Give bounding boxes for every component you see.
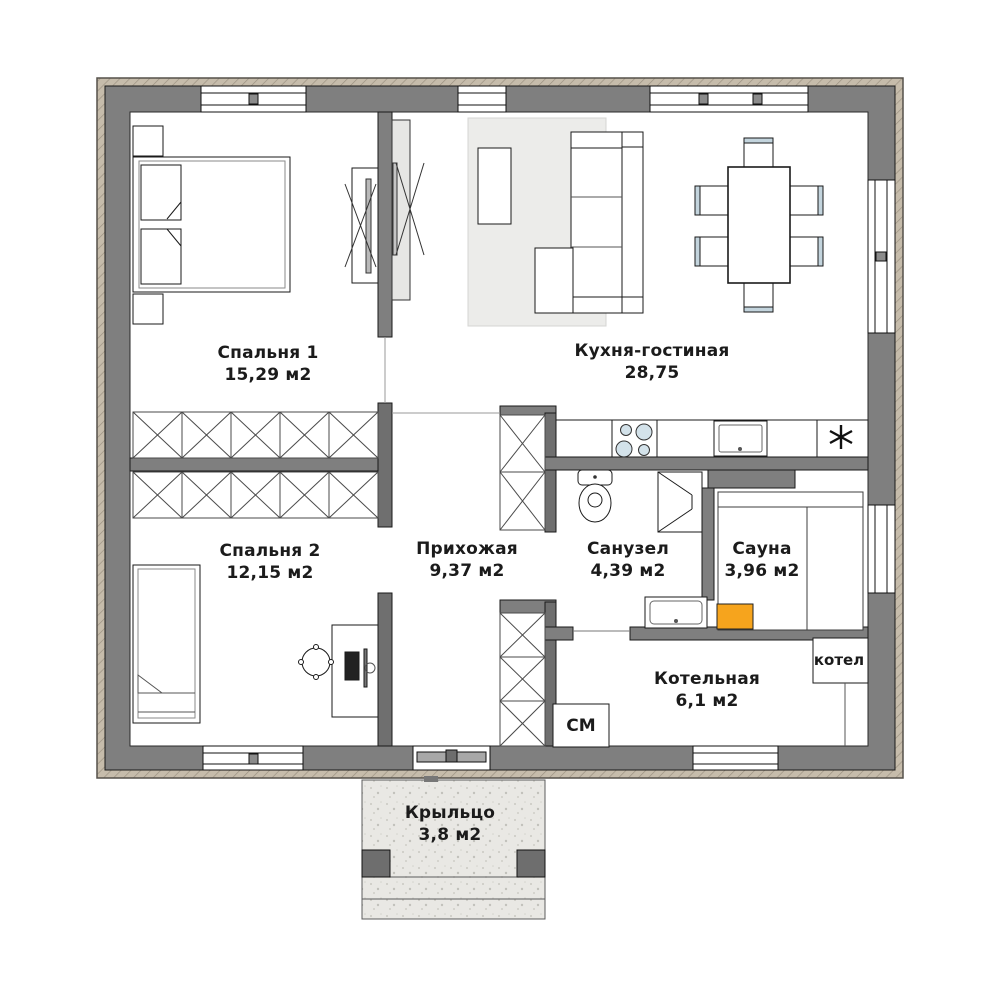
room-label-boiler-room: Котельная 6,1 м2 bbox=[654, 668, 760, 712]
boiler-label: котел bbox=[814, 651, 864, 669]
wall-hallway-right-upper bbox=[545, 413, 556, 532]
desk-pc bbox=[345, 652, 359, 680]
room-area: 15,29 м2 bbox=[217, 364, 318, 386]
room-label-bathroom: Санузел 4,39 м2 bbox=[587, 538, 669, 582]
wall-bathroom-sauna bbox=[702, 488, 714, 600]
room-name: Санузел bbox=[587, 539, 669, 559]
entrance-door bbox=[413, 746, 490, 770]
room-name: Спальня 2 bbox=[219, 541, 320, 561]
floor-plan-drawing bbox=[0, 0, 1000, 1000]
room-label-bedroom1: Спальня 1 15,29 м2 bbox=[217, 342, 318, 386]
room-label-sauna: Сауна 3,96 м2 bbox=[725, 538, 800, 582]
room-area: 4,39 м2 bbox=[587, 560, 669, 582]
room-name: Сауна bbox=[732, 539, 791, 559]
room-area: 3,96 м2 bbox=[725, 560, 800, 582]
room-name: Прихожая bbox=[416, 539, 518, 559]
window-bedroom1-top bbox=[201, 86, 306, 112]
washing-machine-label: СМ bbox=[566, 716, 595, 736]
porch-post bbox=[517, 850, 545, 877]
desk bbox=[332, 625, 378, 717]
room-area: 6,1 м2 bbox=[654, 690, 760, 712]
room-label-porch: Крыльцо 3,8 м2 bbox=[405, 802, 495, 846]
window-dining-top bbox=[650, 86, 808, 112]
floor-plan-canvas: Спальня 1 15,29 м2 Кухня-гостиная 28,75 … bbox=[0, 0, 1000, 1000]
porch-step bbox=[362, 899, 545, 919]
room-name: Кухня-гостиная bbox=[575, 341, 730, 361]
porch-threshold-mark bbox=[424, 776, 438, 782]
window-kitchen-small-top bbox=[458, 86, 506, 112]
wardrobe-hallway-lower bbox=[500, 613, 545, 746]
bathroom-sink bbox=[645, 597, 707, 628]
wall-kitchen-bathroom bbox=[545, 457, 868, 470]
room-label-kitchen-living: Кухня-гостиная 28,75 bbox=[575, 340, 730, 384]
wardrobe-bedroom1 bbox=[133, 412, 378, 458]
room-name: Крыльцо bbox=[405, 803, 495, 823]
toilet bbox=[578, 470, 612, 522]
dining-table bbox=[728, 167, 790, 283]
room-area: 28,75 bbox=[575, 362, 730, 384]
wall-hallway-left-lower bbox=[378, 593, 392, 746]
wardrobe-bedroom2 bbox=[133, 472, 378, 518]
porch-step bbox=[362, 877, 545, 899]
room-label-hallway: Прихожая 9,37 м2 bbox=[416, 538, 518, 582]
wall-bedroom1-kitchen bbox=[378, 112, 392, 337]
ottoman bbox=[535, 248, 573, 313]
room-area: 9,37 м2 bbox=[416, 560, 518, 582]
sauna-heater bbox=[717, 604, 753, 629]
shower bbox=[658, 472, 702, 532]
wall-wardrobe-divider bbox=[130, 458, 390, 471]
wardrobe-hallway-upper bbox=[500, 415, 545, 530]
porch-structure bbox=[362, 776, 545, 919]
window-boiler-bottom bbox=[693, 746, 778, 770]
kitchen-counter bbox=[556, 420, 868, 457]
window-sauna-right bbox=[868, 505, 895, 593]
window-kitchen-right bbox=[868, 180, 895, 333]
wall-pillar-hallway-left-upper bbox=[378, 403, 392, 527]
kitchen-sink bbox=[714, 421, 767, 456]
single-bed bbox=[133, 565, 200, 723]
room-label-bedroom2: Спальня 2 12,15 м2 bbox=[219, 540, 320, 584]
room-name: Котельная bbox=[654, 669, 760, 689]
window-bedroom2-bottom bbox=[203, 746, 303, 770]
coffee-table bbox=[478, 148, 511, 224]
wall-boiler-top-left bbox=[545, 627, 573, 640]
room-name: Спальня 1 bbox=[217, 343, 318, 363]
room-area: 12,15 м2 bbox=[219, 562, 320, 584]
porch-post bbox=[362, 850, 390, 877]
wall-sauna-top bbox=[708, 470, 795, 488]
room-area: 3,8 м2 bbox=[405, 824, 495, 846]
bed-double bbox=[133, 157, 290, 292]
